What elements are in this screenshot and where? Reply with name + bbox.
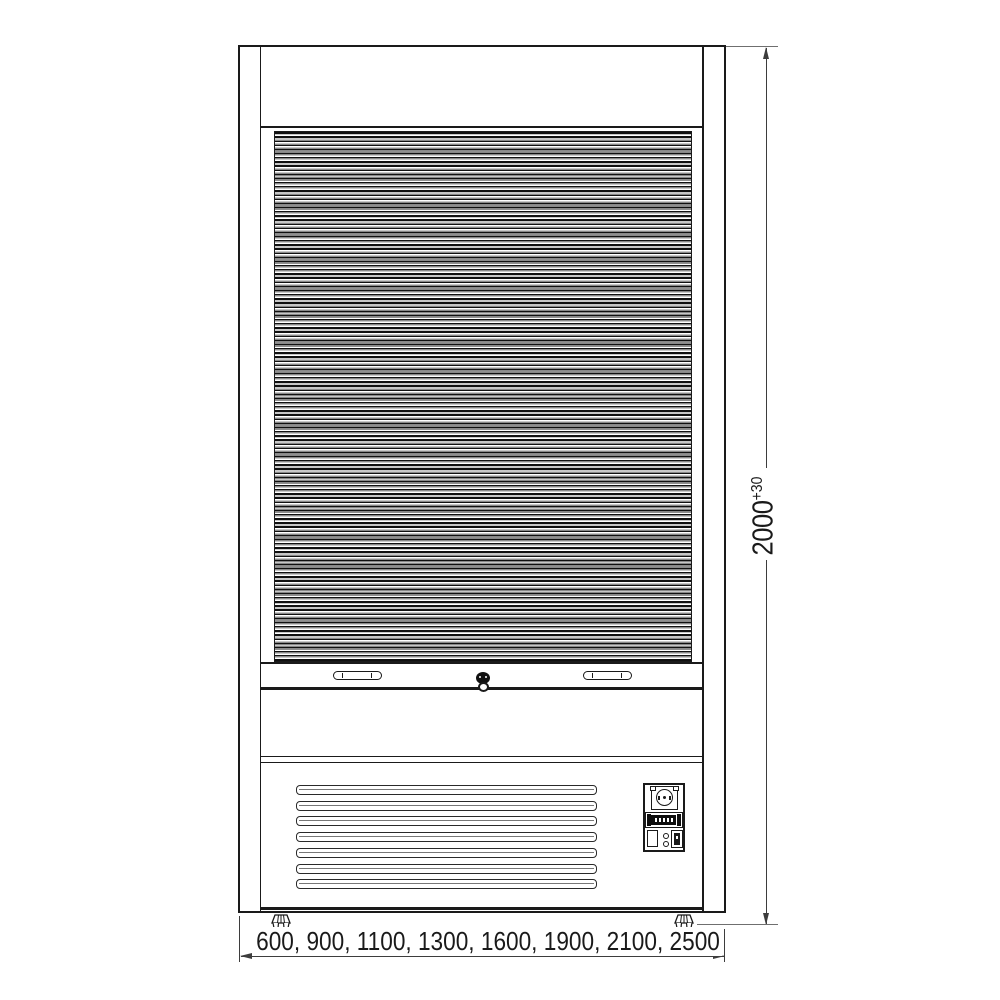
vent-louver-icon	[296, 785, 597, 795]
display-segment	[671, 818, 673, 822]
height-tolerance: +30	[749, 477, 766, 501]
panel-divider-strip	[261, 756, 702, 763]
socket-contact	[658, 796, 660, 800]
vent-louver-icon	[296, 879, 597, 889]
lock-detail	[479, 676, 481, 678]
left-post-line	[260, 47, 262, 911]
handle-icon-left	[333, 671, 382, 680]
technical-drawing-canvas: 2000+30 600, 900, 1100, 1300, 1600, 1900…	[0, 0, 1000, 1000]
height-dimension-label: 2000+30	[748, 472, 781, 560]
lock-detail	[485, 676, 487, 678]
vent-louver-icon	[296, 832, 597, 842]
vent-louver-icon	[296, 864, 597, 874]
switch-blank-icon	[647, 830, 658, 847]
handle-detail	[592, 673, 593, 678]
display-side-tab	[677, 814, 681, 826]
extension-line-top	[726, 46, 778, 47]
height-dimension-line-lower	[766, 560, 767, 924]
vent-louver-icon	[296, 801, 597, 811]
handle-detail	[342, 673, 343, 678]
power-switch-rocker	[674, 833, 680, 845]
dimension-arrow-up	[763, 47, 769, 59]
height-value: 2000	[748, 500, 780, 555]
indicator-dot	[663, 833, 669, 839]
dimension-arrow-left	[240, 953, 252, 959]
display-segment	[667, 818, 669, 822]
display-side-tab	[647, 814, 651, 826]
extension-line-bottom-right	[697, 924, 778, 925]
height-dimension-line-upper	[766, 48, 767, 468]
roller-shutter-curtain-icon	[274, 131, 692, 662]
socket-mount-tab	[650, 786, 656, 791]
controller-screen	[651, 815, 676, 825]
socket-circle	[656, 789, 673, 806]
handle-icon-right	[583, 671, 632, 680]
socket-contact	[669, 796, 671, 800]
display-segment	[659, 818, 661, 822]
socket-pin	[663, 796, 666, 799]
vent-louver-icon	[296, 816, 597, 826]
width-dimension-label: 600, 900, 1100, 1300, 1600, 1900, 2100, …	[254, 927, 723, 956]
display-segment	[663, 818, 665, 822]
right-post-line	[702, 47, 704, 911]
vent-louver-icon	[296, 848, 597, 858]
lock-ring-icon	[478, 682, 489, 692]
socket-mount-tab	[673, 786, 679, 791]
indicator-dot	[663, 841, 669, 847]
top-panel-bottom-edge	[261, 126, 702, 129]
handle-detail	[621, 673, 622, 678]
display-segment	[655, 818, 657, 822]
vent-panel-bottom-edge	[261, 907, 702, 910]
handle-detail	[371, 673, 372, 678]
top-panel	[261, 47, 702, 126]
